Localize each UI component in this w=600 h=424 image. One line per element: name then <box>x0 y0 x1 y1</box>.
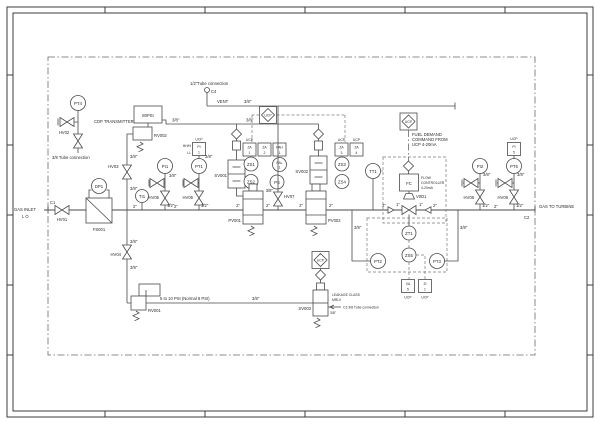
rv001-relief-line: HV04 3/8" 3/8" RV001 5 to 10 PSI (Normal… <box>111 210 313 321</box>
sv003-spring <box>314 318 320 328</box>
label-hv04: HV04 <box>111 252 122 257</box>
v0d1-actuator <box>404 194 415 200</box>
ucp-box-za1-l1: ZA <box>247 146 252 150</box>
alarm-hh: HH/H <box>183 144 192 148</box>
ucp-box-za4-l1: ZA <box>354 146 359 150</box>
label-hv07: HV07 <box>284 194 295 199</box>
ucp-box-xa5-l2: 5 <box>407 288 409 292</box>
ucp-box-zi1-l2: 1 <box>424 288 426 292</box>
label-pal-l1: PAL <box>277 161 283 165</box>
zs-cluster-1: ZA 1 UCP ZA 2 ZS1 ZS2 <box>243 138 271 189</box>
pi2-root-valve <box>464 179 478 188</box>
fuel-gas-pid-canvas: UCP GAS INLET L O C1 HV01 FS001 DP1 2" P… <box>0 0 600 424</box>
rv002-spring <box>137 142 143 152</box>
label-v0d1: V0D1 <box>416 194 427 199</box>
ucp-box-pi5-l2: 5 <box>513 151 515 155</box>
ucp-box-pi5-l1: PI <box>512 145 515 149</box>
label-zs4: ZS4 <box>338 180 346 185</box>
label-zs5: ZS5 <box>405 253 413 258</box>
vent-tube-note: 1/2"Tube connection <box>190 81 229 86</box>
size-inlet: 2" <box>133 204 137 209</box>
solenoid-sv001 <box>228 160 245 188</box>
pt5-transmitter-assembly: PT5 PI 5 UCP HV09 3/8" 1/2" 2" <box>494 137 525 210</box>
gas-outlet-label: GAS TO TURBINE <box>539 204 574 209</box>
label-ps: PS <box>274 180 280 185</box>
label-tt1: TT1 <box>369 169 377 174</box>
pt1-root-valve <box>184 179 198 188</box>
size-sv001-feed: 3/8" <box>205 154 213 159</box>
label-hv02: HV02 <box>59 130 70 135</box>
label-pt1: PT1 <box>195 164 203 169</box>
gas-inlet-label-1: GAS INLET <box>14 207 36 212</box>
ucp-box-za2-l2: 2 <box>264 151 266 155</box>
valve-hv09 <box>510 190 519 204</box>
label-fc: FC <box>406 181 412 186</box>
pv001-spring <box>248 226 254 236</box>
sv003-pilot-box <box>317 283 325 290</box>
size-rv001-line: 3/8" <box>252 296 260 301</box>
valve-hv03 <box>123 165 132 179</box>
label-hv06: HV06 <box>183 195 194 200</box>
pid-drawing: UCP GAS INLET L O C1 HV01 FS001 DP1 2" P… <box>0 0 600 424</box>
cdp-transmitter-assembly: PT4 HV02 3/8 Tube connection CDP TRANSMI… <box>52 96 134 161</box>
ucp-signal-diamond-2 <box>400 113 417 130</box>
vent-outlet-c4 <box>205 88 210 93</box>
valve-hv04 <box>123 245 132 259</box>
label-zs3: ZS3 <box>338 162 346 167</box>
size-cv-2r: 2" <box>433 203 437 208</box>
label-hv03: HV03 <box>108 164 119 169</box>
size-pv001-r: 2" <box>266 203 270 208</box>
size-hv04-up: 3/8" <box>130 239 138 244</box>
size-pt3: 3/8" <box>460 225 468 230</box>
ucp-box-za3-l1: ZA <box>339 146 344 150</box>
label-ti1: TI1 <box>139 194 146 199</box>
flow-control-assembly: TT1 FUEL DEMAND COMMAND FROM UCP 4-20mA … <box>366 113 449 300</box>
label-hv05: HV05 <box>149 195 160 200</box>
sv001-solenoid: SV001 <box>214 124 245 196</box>
label-sv003: SV003 <box>298 306 311 311</box>
size-hv03-up: 3/8" <box>130 154 138 159</box>
rv001-setpoint-note: 5 to 10 PSI (Normal 8 PSI) <box>160 296 210 301</box>
label-80psi: 80PSI <box>142 113 153 118</box>
ucp-caption-xa5: UCP <box>404 296 412 300</box>
sv002-filter-diamond <box>314 129 324 139</box>
zs-cluster-2: ZA 3 UCP ZA 4 UCP ZS3 ZS4 <box>335 138 363 189</box>
ucp-box-za2-l1: ZA <box>262 146 267 150</box>
label-zs1: ZS1 <box>247 162 255 167</box>
size-hv03-dn: 3/8" <box>130 186 138 191</box>
pi2-gauge-assembly: PI2 HV08 3/8" 1/2" <box>462 159 491 211</box>
reducer-right <box>425 207 431 213</box>
label-fs001: FS001 <box>93 227 106 232</box>
connection-c1: C1 <box>50 200 56 205</box>
size-sv003: 3/8" <box>330 311 337 315</box>
regulator-rv001 <box>131 296 146 310</box>
cdp-tube-note: 3/8 Tube connection <box>52 155 90 160</box>
size-line-2in-a: 2" <box>174 204 178 209</box>
fc-note-l1: FLOW <box>421 176 432 180</box>
label-pi2: PI2 <box>477 164 484 169</box>
sv001-pilot-box <box>233 141 241 150</box>
label-hv08: HV08 <box>464 195 475 200</box>
size-vent: 3/8" <box>244 99 252 104</box>
ucp-signal-diamond-1 <box>260 107 277 124</box>
ucp-box-pt1-l2: 1 <box>198 151 200 155</box>
size-pt2: 3/8" <box>354 225 362 230</box>
valve-hv07 <box>274 192 283 206</box>
size-supply-1: 3/8" <box>172 118 180 123</box>
ucp-caption-pt1: UCP <box>195 138 203 142</box>
label-pal-l2: 1 <box>279 166 281 170</box>
size-hv09: 1/2" <box>516 203 524 208</box>
outlet-section: C2 GAS TO TURBINE <box>524 204 574 220</box>
ucp-caption-za3: UCP <box>338 138 346 142</box>
label-pi1: PI1 <box>162 164 169 169</box>
size-pv001-l: 2" <box>236 203 240 208</box>
ucp-signal-diamond-3 <box>312 252 329 269</box>
reducer-left <box>388 207 394 213</box>
size-pv002-r: 2" <box>329 203 333 208</box>
ucp-box-pah-l2: 1 <box>279 151 281 155</box>
size-hv08: 1/2" <box>482 203 490 208</box>
solenoid-sv002 <box>310 156 327 184</box>
pt1-transmitter-assembly: PT1 PI 1 UCP HH/H LL HV06 1/2" 3/8" <box>183 138 213 211</box>
connection-c2: C2 <box>524 215 530 220</box>
size-supply-2: 3/8" <box>246 118 254 123</box>
label-pt5: PT5 <box>510 164 518 169</box>
pi1-root-valve <box>150 179 164 188</box>
label-sv001: SV001 <box>214 173 227 178</box>
inlet-section: GAS INLET L O C1 HV01 FS001 DP1 2" <box>14 179 137 233</box>
leakage-note-l2: MRLV <box>332 298 342 302</box>
label-dp1: DP1 <box>95 184 104 189</box>
label-pt4: PT4 <box>74 101 82 106</box>
leakage-note-l1: LEAKAGE CLASS <box>332 293 361 297</box>
sv003-filter-diamond <box>316 270 326 280</box>
gas-inlet-label-2: L O <box>22 214 29 219</box>
sv001-filter-diamond <box>232 129 242 139</box>
pv002-spring <box>311 226 317 236</box>
shutoff-pv001 <box>243 184 263 224</box>
control-valve-v0d1 <box>402 206 416 215</box>
cdp-isolation-valve <box>74 134 83 148</box>
size-pi2: 3/8" <box>483 172 491 177</box>
sv002-pilot-box <box>315 141 323 150</box>
valve-hv01 <box>55 206 69 215</box>
label-pt2: PT2 <box>374 259 382 264</box>
ti1-thermometer: TI1 <box>136 190 149 211</box>
pi1-gauge-assembly: PI1 HV05 3/8" 1/2" 2" <box>149 159 179 211</box>
label-pt3: PT3 <box>433 259 441 264</box>
size-hv07: 3/8" <box>266 188 274 193</box>
size-line-2in-b: 2" <box>494 204 498 209</box>
pt3-assembly: PT3 3/8" <box>430 210 468 269</box>
size-cv-1r: 1" <box>419 202 423 207</box>
label-vent: VENT <box>217 99 229 104</box>
ucp-box-pah-l1: PAH <box>276 146 283 150</box>
size-pt5: 3/8" <box>517 172 525 177</box>
valve-hv08 <box>476 190 485 204</box>
size-hv06: 1/2" <box>201 203 209 208</box>
label-zt1: ZT1 <box>405 231 413 236</box>
shutoff-pv002 <box>306 184 326 224</box>
size-hv04-dn: 3/8" <box>130 265 138 270</box>
ucp-box-pt1-l1: PI <box>197 145 200 149</box>
ucp-caption-za1: UCP <box>246 138 254 142</box>
fc-note-l2: CONTROLLER <box>421 181 445 185</box>
c3-connection-note: C3 3/8 Tube connection <box>343 306 379 310</box>
alarm-ll: LL <box>187 151 191 155</box>
skid-boundary <box>48 57 535 355</box>
label-pv002: PV002 <box>328 218 341 223</box>
ucp-box-zi1-l1: ZI <box>423 282 426 286</box>
label-rv002: RV002 <box>154 133 167 138</box>
valve-hv02 <box>60 118 74 127</box>
label-hv09: HV09 <box>498 195 509 200</box>
label-rv001: RV001 <box>148 308 161 313</box>
ucp-caption-pi5: UCP <box>510 137 518 141</box>
size-pi1: 3/8" <box>169 173 177 178</box>
label-pv001: PV001 <box>228 218 241 223</box>
label-sv002: SV002 <box>295 169 308 174</box>
rv001-pilot-box <box>139 284 160 296</box>
connection-c4: C4 <box>211 89 217 94</box>
sv003-leakage-valve: SV003 LEAKAGE CLASS MRLV C3 3/8 Tube con… <box>298 252 379 328</box>
ucp-box-za1-l2: 1 <box>249 151 251 155</box>
sv002-solenoid: SV002 <box>295 124 327 184</box>
fc-note-l3: 4-20mA <box>421 186 434 190</box>
fuel-demand-l3: UCP 4-20mA <box>412 142 437 147</box>
size-pv002-l: 2" <box>299 203 303 208</box>
regulator-rv002 <box>133 127 152 140</box>
label-cdp-transmitter: CDP TRANSMITTER <box>94 119 134 124</box>
ucp-caption-zi1: UCP <box>421 296 429 300</box>
pt5-root-valve <box>498 179 512 188</box>
size-cv-2l: 2" <box>382 203 386 208</box>
label-hv01: HV01 <box>57 217 68 222</box>
ucp-box-xa5-l1: XA <box>406 282 411 286</box>
ucp-caption-za4: UCP <box>353 138 361 142</box>
rv001-spring <box>133 311 139 321</box>
size-cv-1l: 1" <box>396 202 400 207</box>
ucp-box-za4-l2: 4 <box>356 151 358 155</box>
ucp-box-za3-l2: 3 <box>341 151 343 155</box>
fc-filter-diamond <box>404 161 414 171</box>
